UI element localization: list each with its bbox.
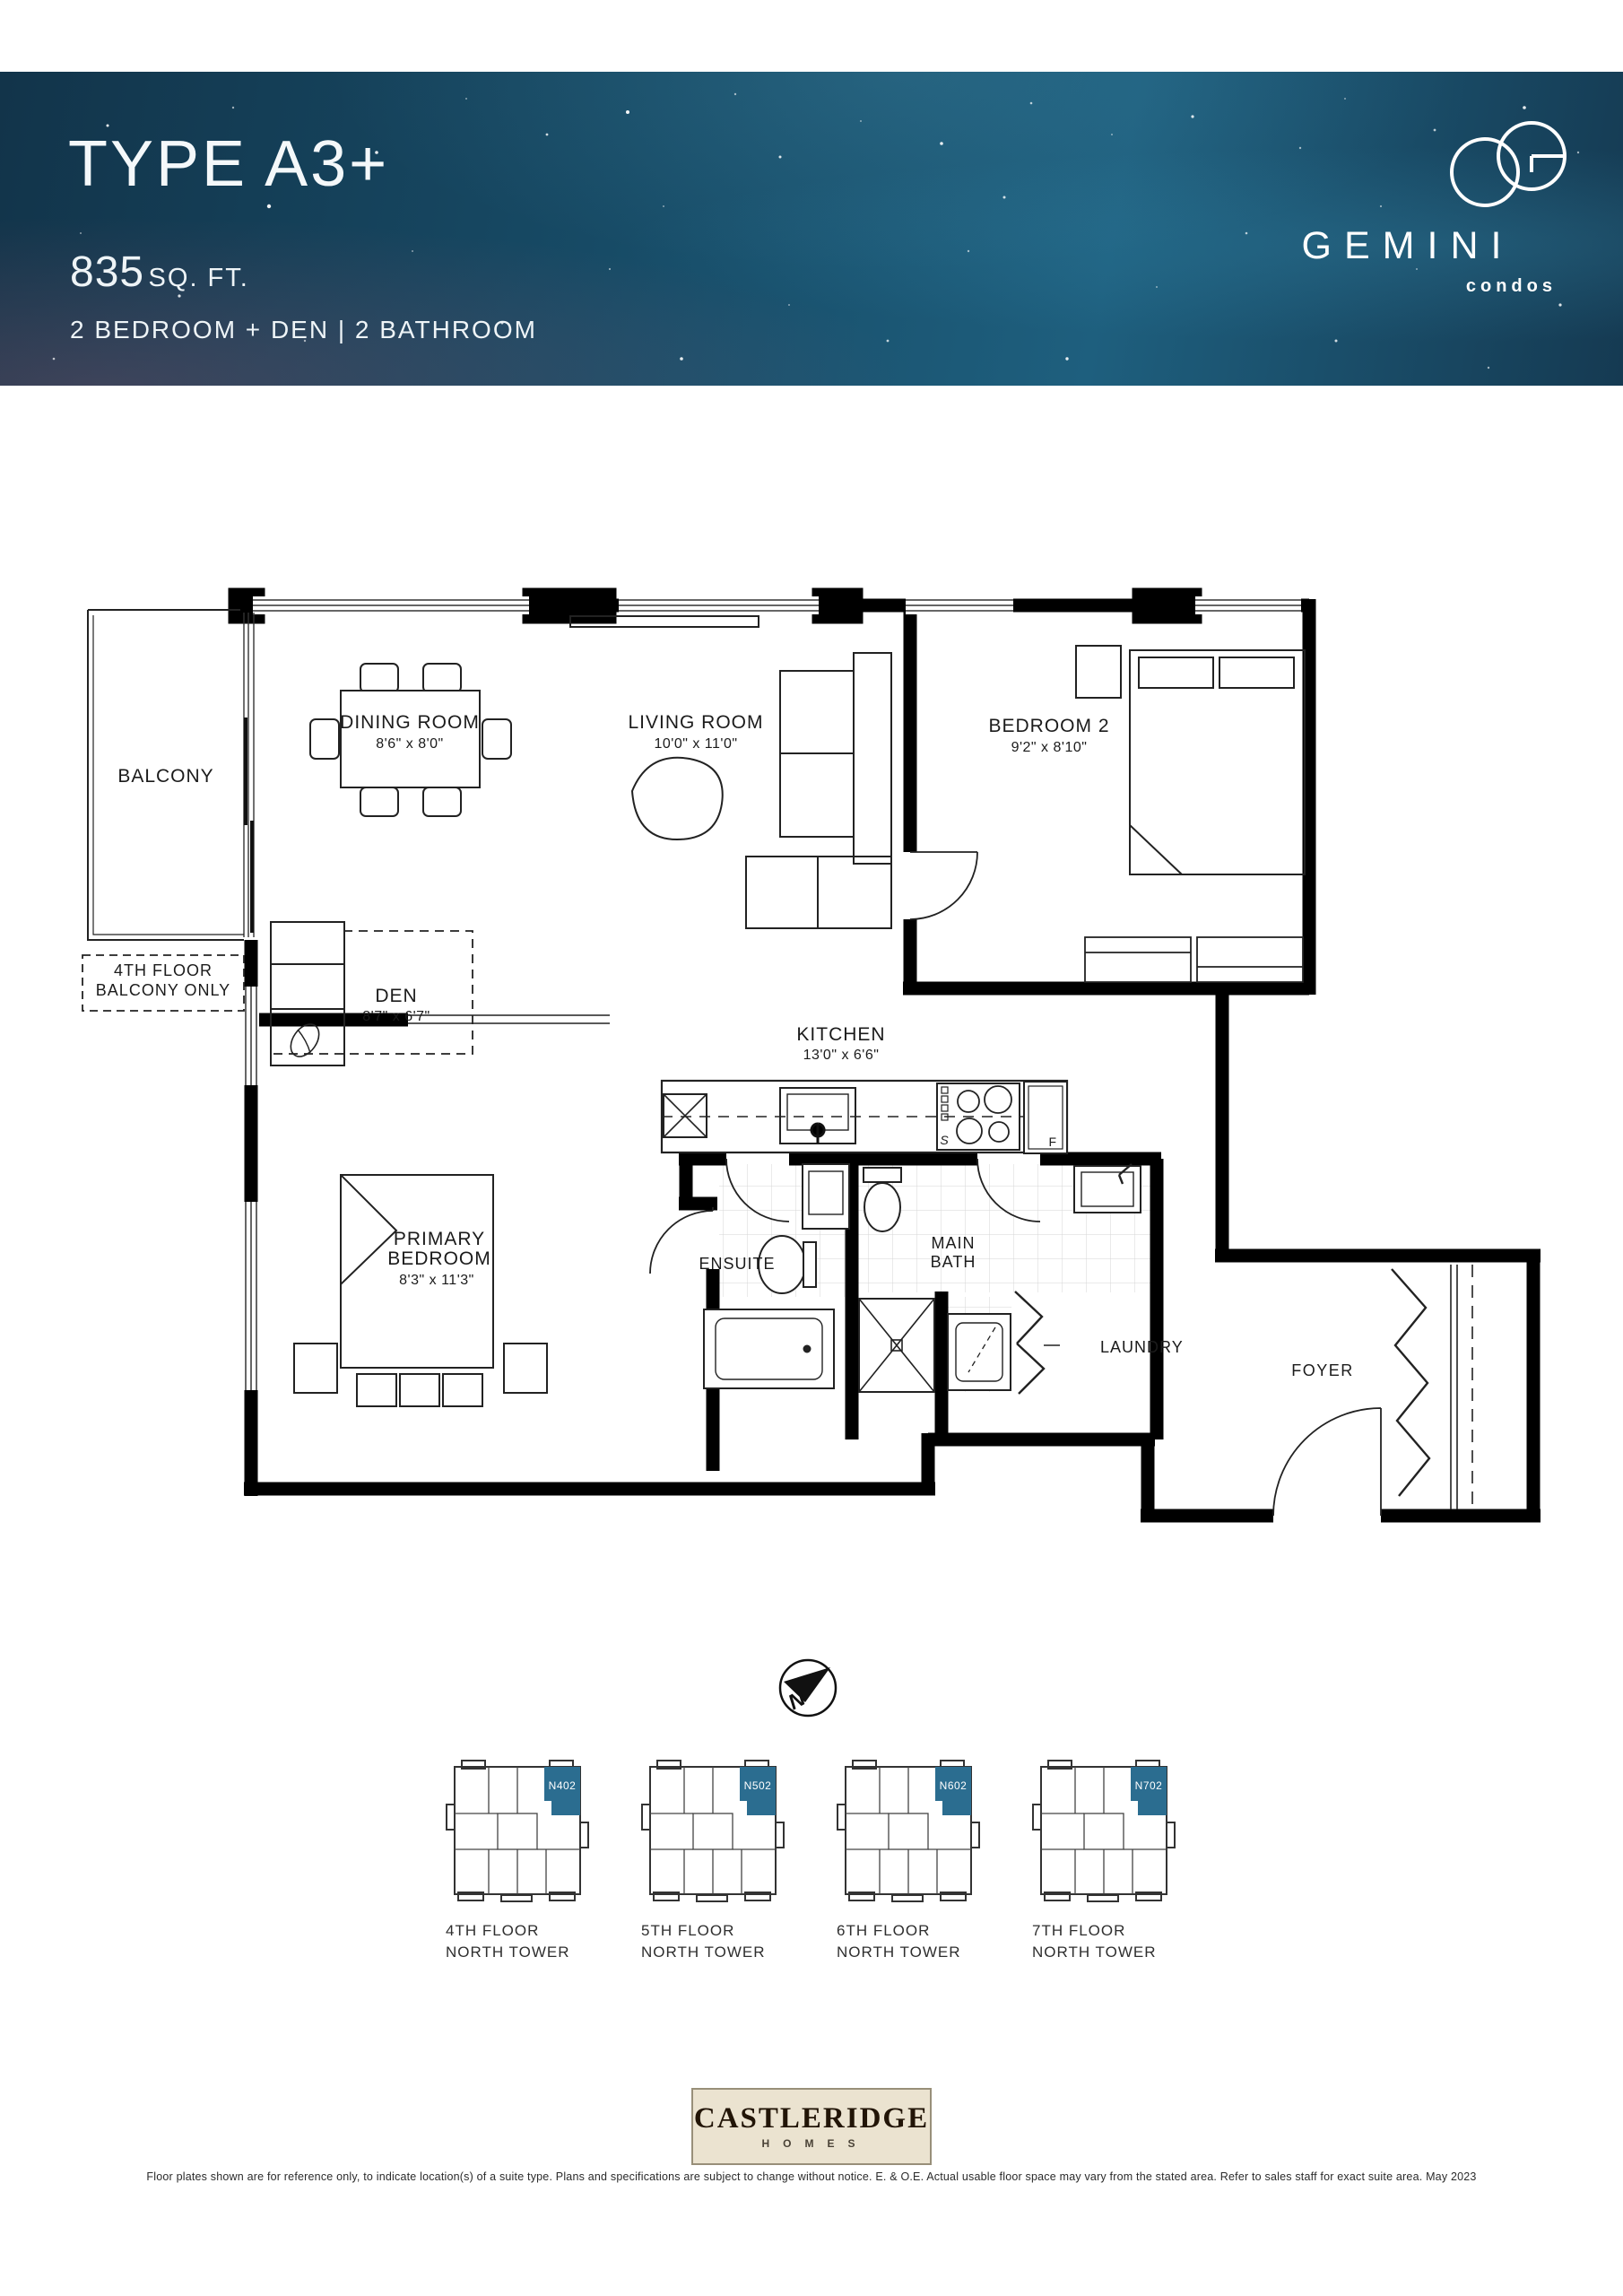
foyer-closet <box>1392 1265 1472 1509</box>
page-title: TYPE A3+ <box>68 127 389 201</box>
bedroom2-dims: 9'2" x 8'10" <box>1011 740 1088 755</box>
mainbath-label2: BATH <box>931 1253 976 1271</box>
keyplan-tower: NORTH TOWER <box>641 1942 786 1963</box>
kitchen-counter <box>662 1081 1067 1153</box>
builder-name: CASTLERIDGE <box>693 2102 930 2135</box>
north-compass-icon: N <box>769 1652 846 1729</box>
stove-label: S <box>940 1133 949 1147</box>
area-unit: SQ. FT. <box>149 264 249 292</box>
keyplan-tower: NORTH TOWER <box>837 1942 982 1963</box>
keyplan-caption: 7TH FLOOR NORTH TOWER <box>1032 1920 1177 1963</box>
suite-config: 2 BEDROOM + DEN | 2 BATHROOM <box>70 316 537 344</box>
gemini-logo-icon <box>1433 90 1585 224</box>
unit-code: N402 <box>549 1779 577 1792</box>
keyplan-caption: 5TH FLOOR NORTH TOWER <box>641 1920 786 1963</box>
keyplan-floor: 6TH FLOOR <box>837 1920 982 1942</box>
den-dashed-boundary <box>269 931 473 1054</box>
keyplan-7th-floor: N702 7TH FLOOR NORTH TOWER <box>1032 1760 1177 1963</box>
keyplan-row: N402 4TH FLOOR NORTH TOWER N502 <box>0 1760 1623 1963</box>
disclaimer-text: Floor plates shown are for reference onl… <box>0 2170 1623 2183</box>
keyplan-6th-floor: N602 6TH FLOOR NORTH TOWER <box>837 1760 982 1963</box>
area-value: 835 <box>70 248 144 296</box>
builder-subtitle: HOMES <box>693 2137 930 2150</box>
den-shelf-lines <box>408 1015 610 1023</box>
keyplan-floor: 7TH FLOOR <box>1032 1920 1177 1942</box>
fridge-label: F <box>1048 1135 1056 1149</box>
living-furniture <box>570 616 891 928</box>
keyplan-tower: NORTH TOWER <box>1032 1942 1177 1963</box>
mainbath-label1: MAIN <box>932 1234 976 1252</box>
keyplan-tower: NORTH TOWER <box>446 1942 591 1963</box>
keyplan-diagram: N402 <box>446 1760 591 1903</box>
unit-code: N702 <box>1135 1779 1163 1792</box>
balcony-note-line2: BALCONY ONLY <box>96 981 230 999</box>
bedroom2-label: BEDROOM 2 <box>988 716 1109 736</box>
den-dims: 8'7" x 6'7" <box>362 1009 430 1024</box>
primary-furniture <box>294 1175 547 1406</box>
keyplan-diagram: N602 <box>837 1760 982 1903</box>
brand-subtitle: condos <box>1255 276 1557 297</box>
brand-name: GEMINI <box>1255 224 1560 268</box>
laundry-label: LAUNDRY <box>1100 1338 1184 1356</box>
keyplan-5th-floor: N502 5TH FLOOR NORTH TOWER <box>641 1760 786 1963</box>
living-room-label: LIVING ROOM <box>628 712 763 733</box>
unit-code: N602 <box>940 1779 968 1792</box>
unit-code: N502 <box>744 1779 772 1792</box>
balcony-note-line1: 4TH FLOOR <box>114 961 213 979</box>
living-room-dims: 10'0" x 11'0" <box>654 736 737 752</box>
keyplan-diagram: N502 <box>641 1760 786 1903</box>
primary-bedroom-label1: PRIMARY <box>394 1229 485 1249</box>
keyplan-caption: 6TH FLOOR NORTH TOWER <box>837 1920 982 1963</box>
keyplan-caption: 4TH FLOOR NORTH TOWER <box>446 1920 591 1963</box>
bedroom2-closet <box>1085 937 1303 982</box>
dining-room-dims: 8'6" x 8'0" <box>376 736 443 752</box>
primary-bedroom-label2: BEDROOM <box>387 1248 491 1269</box>
ensuite-label: ENSUITE <box>699 1255 775 1273</box>
kitchen-dims: 13'0" x 6'6" <box>803 1048 880 1063</box>
balcony-label: BALCONY <box>117 766 213 787</box>
suite-area: 835 SQ. FT. <box>70 248 249 297</box>
keyplan-diagram: N702 <box>1032 1760 1177 1903</box>
header-banner: TYPE A3+ 835 SQ. FT. 2 BEDROOM + DEN | 2… <box>0 72 1623 386</box>
floorplan-drawing: BALCONY 4TH FLOOR BALCONY ONLY DINING RO… <box>45 556 1578 1578</box>
bedroom2-furniture <box>1076 646 1305 874</box>
keyplan-floor: 5TH FLOOR <box>641 1920 786 1942</box>
keyplan-floor: 4TH FLOOR <box>446 1920 591 1942</box>
keyplan-4th-floor: N402 4TH FLOOR NORTH TOWER <box>446 1760 591 1963</box>
den-daybed <box>271 922 344 1065</box>
den-label: DEN <box>375 986 417 1006</box>
kitchen-label: KITCHEN <box>796 1024 885 1045</box>
dining-room-label: DINING ROOM <box>340 712 480 733</box>
primary-bedroom-dims: 8'3" x 11'3" <box>399 1273 474 1288</box>
builder-logo: CASTLERIDGE HOMES <box>691 2088 932 2165</box>
foyer-label: FOYER <box>1291 1361 1354 1379</box>
